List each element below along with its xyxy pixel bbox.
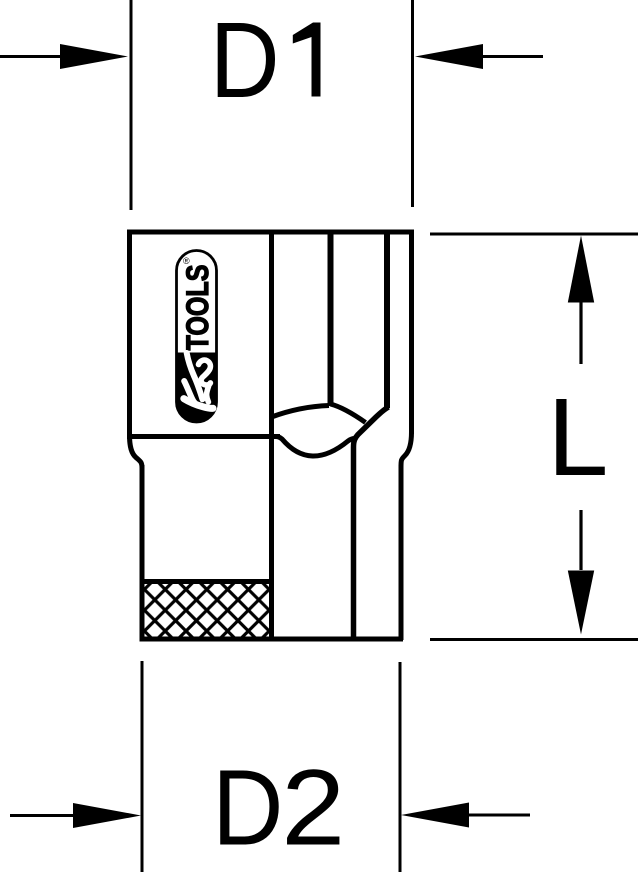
svg-text:TOOLS: TOOLS <box>179 265 215 351</box>
svg-text:D: D <box>210 0 280 120</box>
svg-text:®: ® <box>183 256 190 266</box>
svg-text:D: D <box>212 748 283 868</box>
svg-text:L: L <box>547 376 608 499</box>
svg-text:2: 2 <box>281 747 345 868</box>
